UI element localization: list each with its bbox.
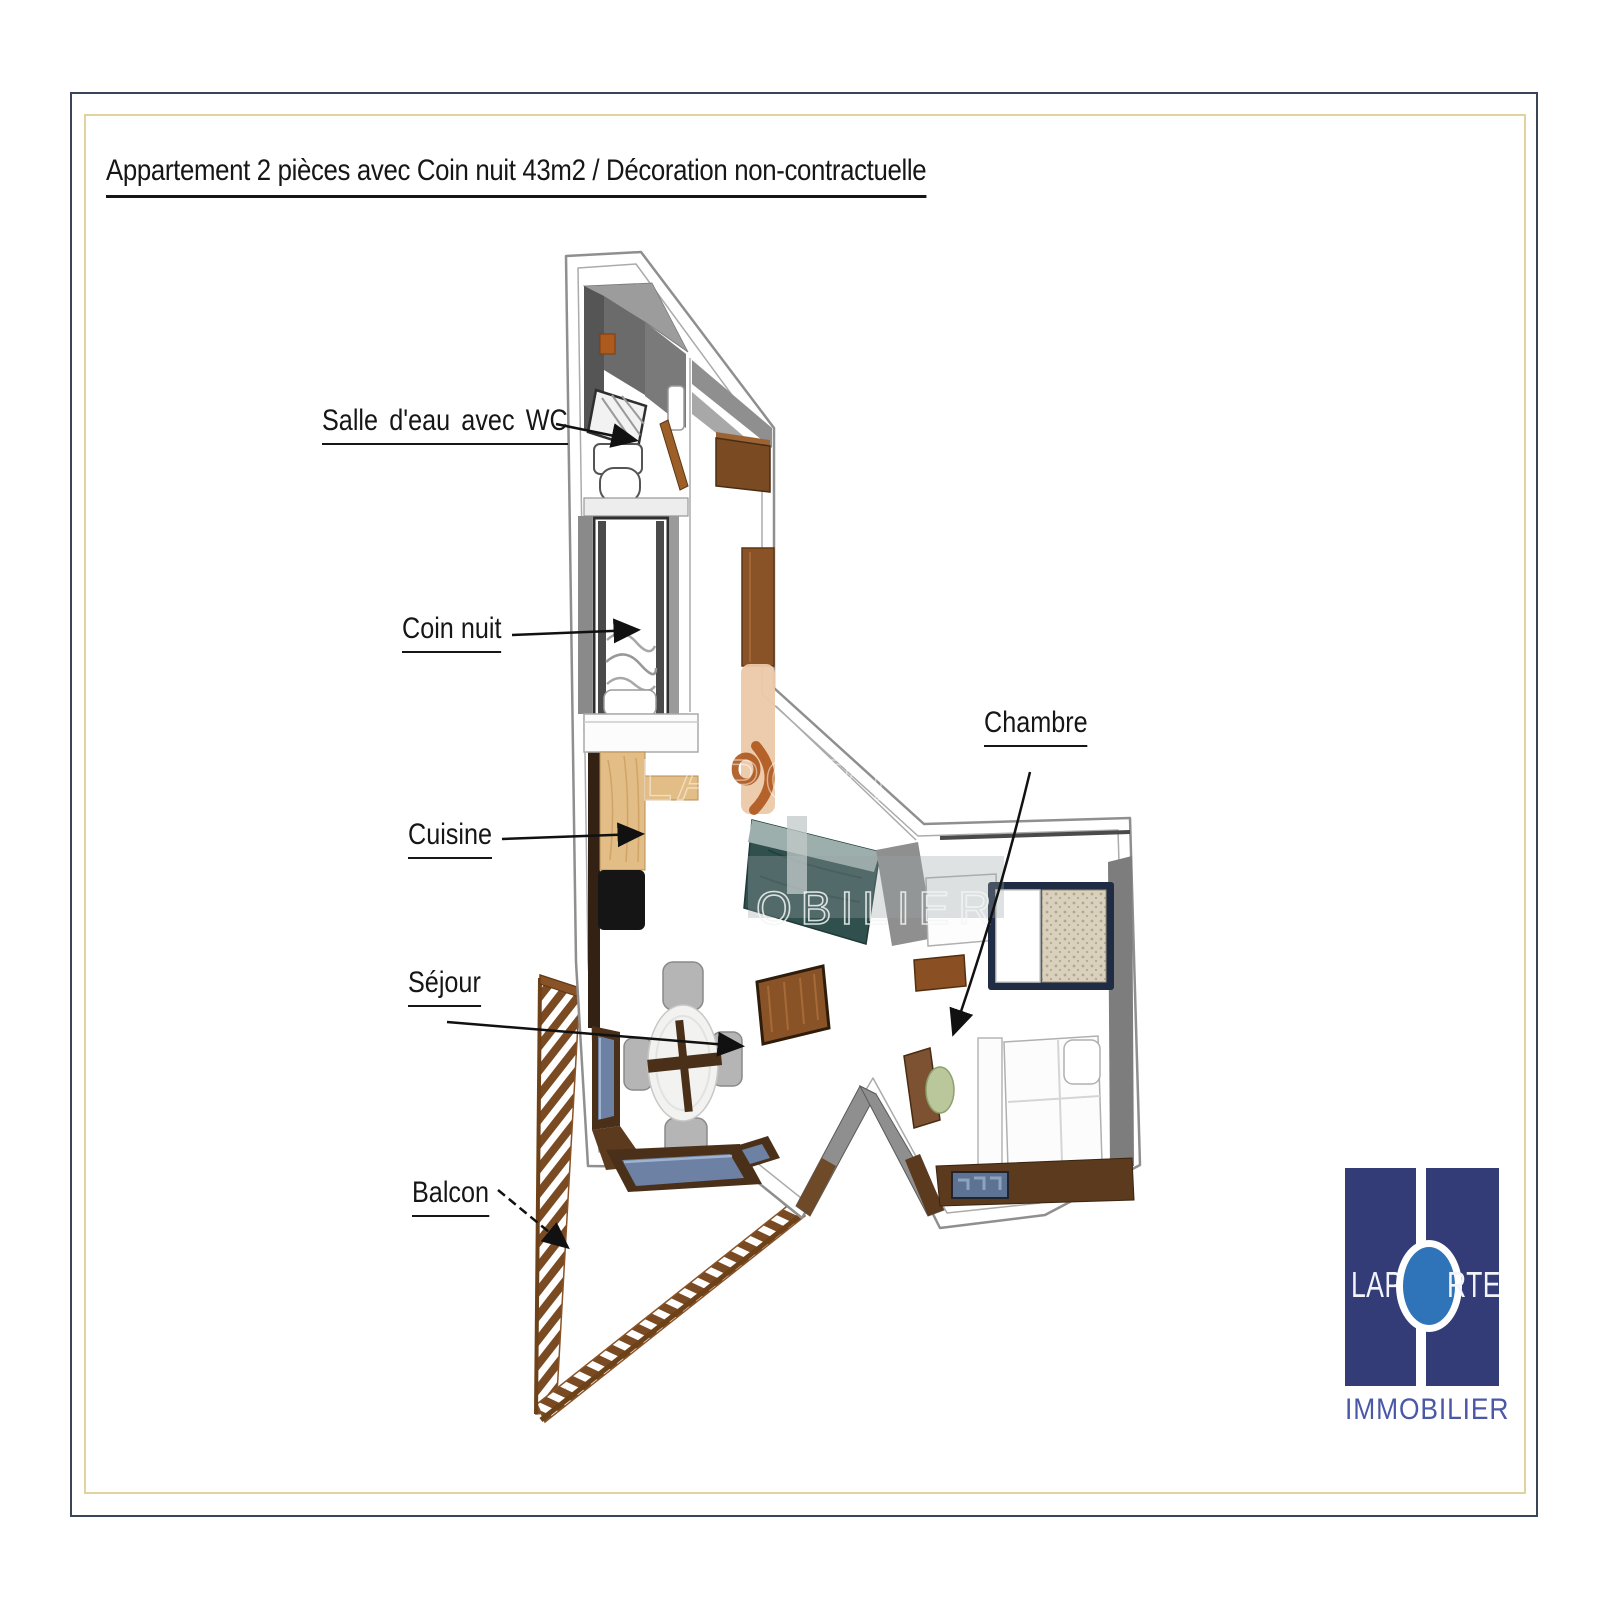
logo-word-left: LAP (1351, 1264, 1402, 1306)
label-coin-nuit: Coin nuit (402, 612, 501, 653)
kitchen-appliance (598, 870, 645, 930)
chair (663, 962, 703, 1010)
watermark-text-bottom: OBILIER (756, 882, 1001, 934)
agency-logo: LAP RTE IMMOBILIER (1345, 1168, 1499, 1427)
logo-square: LAP RTE (1345, 1168, 1499, 1386)
tall-wardrobe (742, 548, 774, 666)
page: Appartement 2 pièces avec Coin nuit 43m2… (0, 0, 1600, 1600)
label-balcon: Balcon (412, 1176, 489, 1217)
watermark-text-top: LAPORTE (640, 748, 945, 813)
bathroom-cabinet-orange (600, 334, 615, 354)
wall-shelf (914, 955, 966, 991)
entry-cabinet (716, 438, 770, 492)
logo-word-right: RTE (1447, 1264, 1499, 1306)
label-chambre: Chambre (984, 706, 1088, 747)
logo-subtitle: IMMOBILIER (1345, 1393, 1481, 1427)
label-salle-deau: Salle d'eau avec WC (322, 404, 568, 445)
label-sejour: Séjour (408, 966, 481, 1007)
label-cuisine: Cuisine (408, 818, 492, 859)
